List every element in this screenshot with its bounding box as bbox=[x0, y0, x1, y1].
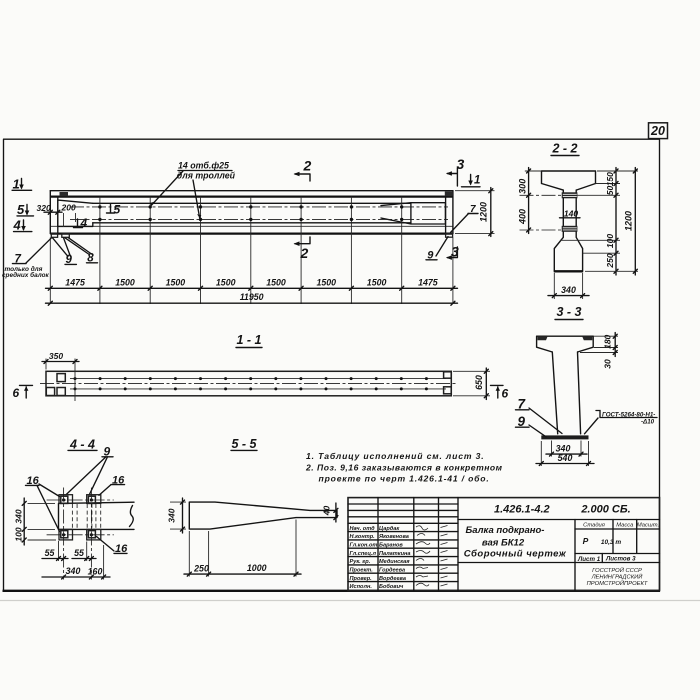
svg-text:2.000 СБ.: 2.000 СБ. bbox=[580, 504, 630, 516]
svg-text:Проект.: Проект. bbox=[350, 567, 374, 573]
svg-text:650: 650 bbox=[474, 375, 484, 390]
svg-text:150: 150 bbox=[605, 172, 615, 186]
svg-text:340: 340 bbox=[561, 285, 576, 295]
svg-text:ГОССТРОЙ СССР: ГОССТРОЙ СССР bbox=[592, 566, 642, 574]
svg-text:10,3 т: 10,3 т bbox=[601, 539, 621, 546]
svg-text:300: 300 bbox=[518, 179, 528, 194]
svg-text:1200: 1200 bbox=[624, 211, 634, 231]
svg-text:2. Поз. 9,16 заказываются в ко: 2. Поз. 9,16 заказываются в конкретном bbox=[305, 462, 503, 472]
svg-text:4 - 4: 4 - 4 bbox=[69, 438, 95, 452]
svg-text:1.426.1-4.2: 1.426.1-4.2 bbox=[494, 504, 550, 516]
svg-text:Гордеева: Гордеева bbox=[379, 567, 405, 573]
svg-text:вая БК12: вая БК12 bbox=[482, 538, 525, 549]
svg-text:100: 100 bbox=[13, 527, 23, 541]
svg-text:1500: 1500 bbox=[367, 277, 387, 287]
svg-text:40: 40 bbox=[322, 506, 332, 517]
svg-text:250: 250 bbox=[605, 253, 615, 268]
svg-text:-Δ10: -Δ10 bbox=[641, 419, 655, 426]
svg-text:1. Таблицу исполнений см. лис: 1. Таблицу исполнений см. лист 3. bbox=[306, 451, 484, 461]
svg-text:250: 250 bbox=[193, 564, 209, 574]
svg-text:100: 100 bbox=[605, 234, 615, 248]
svg-text:Цардак: Цардак bbox=[379, 526, 400, 532]
svg-text:Р: Р bbox=[583, 536, 589, 546]
svg-text:340: 340 bbox=[13, 509, 23, 523]
svg-text:Стадия: Стадия bbox=[583, 523, 605, 529]
svg-text:Нач. отд: Нач. отд bbox=[350, 526, 376, 532]
svg-text:Гл.кон.от: Гл.кон.от bbox=[350, 542, 378, 548]
svg-text:50: 50 bbox=[605, 186, 615, 196]
svg-text:Балка подкрано-: Балка подкрано- bbox=[466, 525, 545, 536]
svg-text:Листов 3: Листов 3 bbox=[605, 555, 636, 562]
svg-text:1500: 1500 bbox=[115, 277, 135, 287]
svg-text:200: 200 bbox=[61, 203, 76, 213]
svg-text:1475: 1475 bbox=[65, 277, 85, 287]
svg-text:1 - 1: 1 - 1 bbox=[236, 333, 261, 347]
svg-text:Гл.спец.л: Гл.спец.л bbox=[350, 551, 377, 557]
svg-text:Баранов: Баранов bbox=[379, 542, 403, 548]
svg-text:11950: 11950 bbox=[240, 292, 264, 302]
svg-text:Яковенова: Яковенова bbox=[378, 534, 409, 540]
svg-text:4: 4 bbox=[80, 216, 88, 230]
svg-text:Масса: Масса bbox=[616, 523, 634, 529]
svg-text:3 - 3: 3 - 3 bbox=[556, 305, 581, 319]
svg-text:Вордеева: Вордеева bbox=[379, 576, 406, 582]
svg-text:средних балок: средних балок bbox=[2, 271, 50, 279]
svg-text:Мединская: Мединская bbox=[379, 559, 410, 565]
svg-text:160: 160 bbox=[88, 566, 103, 576]
svg-text:5 - 5: 5 - 5 bbox=[231, 437, 257, 451]
svg-text:5: 5 bbox=[17, 202, 25, 217]
svg-text:2: 2 bbox=[303, 158, 312, 174]
svg-text:1500: 1500 bbox=[317, 277, 337, 287]
svg-text:140: 140 bbox=[564, 209, 578, 219]
svg-text:для троллей: для троллей bbox=[177, 171, 236, 181]
svg-text:350: 350 bbox=[49, 351, 63, 361]
svg-text:Исполн.: Исполн. bbox=[350, 584, 373, 590]
svg-text:55: 55 bbox=[45, 548, 55, 558]
svg-text:Бобович: Бобович bbox=[379, 583, 404, 590]
svg-text:Сборочный чертеж: Сборочный чертеж bbox=[464, 549, 567, 560]
svg-text:Провер.: Провер. bbox=[350, 576, 373, 582]
svg-text:6: 6 bbox=[13, 386, 20, 400]
svg-text:540: 540 bbox=[558, 453, 573, 463]
svg-text:340: 340 bbox=[66, 566, 81, 576]
svg-text:1200: 1200 bbox=[478, 202, 488, 222]
svg-text:проекте по черт 1.426.1-41 / о: проекте по черт 1.426.1-41 / обо. bbox=[319, 474, 490, 484]
svg-text:1500: 1500 bbox=[216, 277, 236, 287]
svg-text:ПРОМСТРОЙПРОЕКТ: ПРОМСТРОЙПРОЕКТ bbox=[587, 579, 648, 587]
svg-text:Масшт.: Масшт. bbox=[637, 523, 659, 529]
svg-text:180: 180 bbox=[603, 334, 613, 348]
svg-text:Н.контр.: Н.контр. bbox=[350, 534, 376, 540]
svg-text:55: 55 bbox=[74, 548, 84, 558]
svg-text:30: 30 bbox=[603, 359, 613, 369]
svg-text:2: 2 bbox=[300, 245, 309, 261]
svg-text:1: 1 bbox=[13, 176, 20, 191]
svg-text:Лист 1: Лист 1 bbox=[577, 556, 601, 563]
svg-text:340: 340 bbox=[167, 508, 177, 522]
svg-text:2 - 2: 2 - 2 bbox=[551, 142, 577, 156]
svg-text:Палаткина: Палаткина bbox=[379, 551, 411, 557]
svg-text:1475: 1475 bbox=[418, 277, 438, 287]
svg-text:ЛЕНИНГРАДСКИЙ: ЛЕНИНГРАДСКИЙ bbox=[591, 573, 644, 581]
svg-text:6: 6 bbox=[502, 386, 509, 400]
svg-text:400: 400 bbox=[518, 209, 528, 225]
svg-text:14 отб.ф25: 14 отб.ф25 bbox=[178, 161, 229, 171]
svg-text:1500: 1500 bbox=[166, 277, 186, 287]
svg-text:20: 20 bbox=[650, 124, 665, 138]
svg-text:Рук. гр.: Рук. гр. bbox=[350, 559, 371, 565]
svg-text:1: 1 bbox=[474, 175, 480, 187]
svg-text:4: 4 bbox=[13, 218, 22, 233]
svg-text:1500: 1500 bbox=[266, 277, 286, 287]
svg-text:1000: 1000 bbox=[247, 563, 267, 573]
svg-text:320: 320 bbox=[37, 203, 51, 213]
svg-text:5: 5 bbox=[114, 202, 121, 216]
